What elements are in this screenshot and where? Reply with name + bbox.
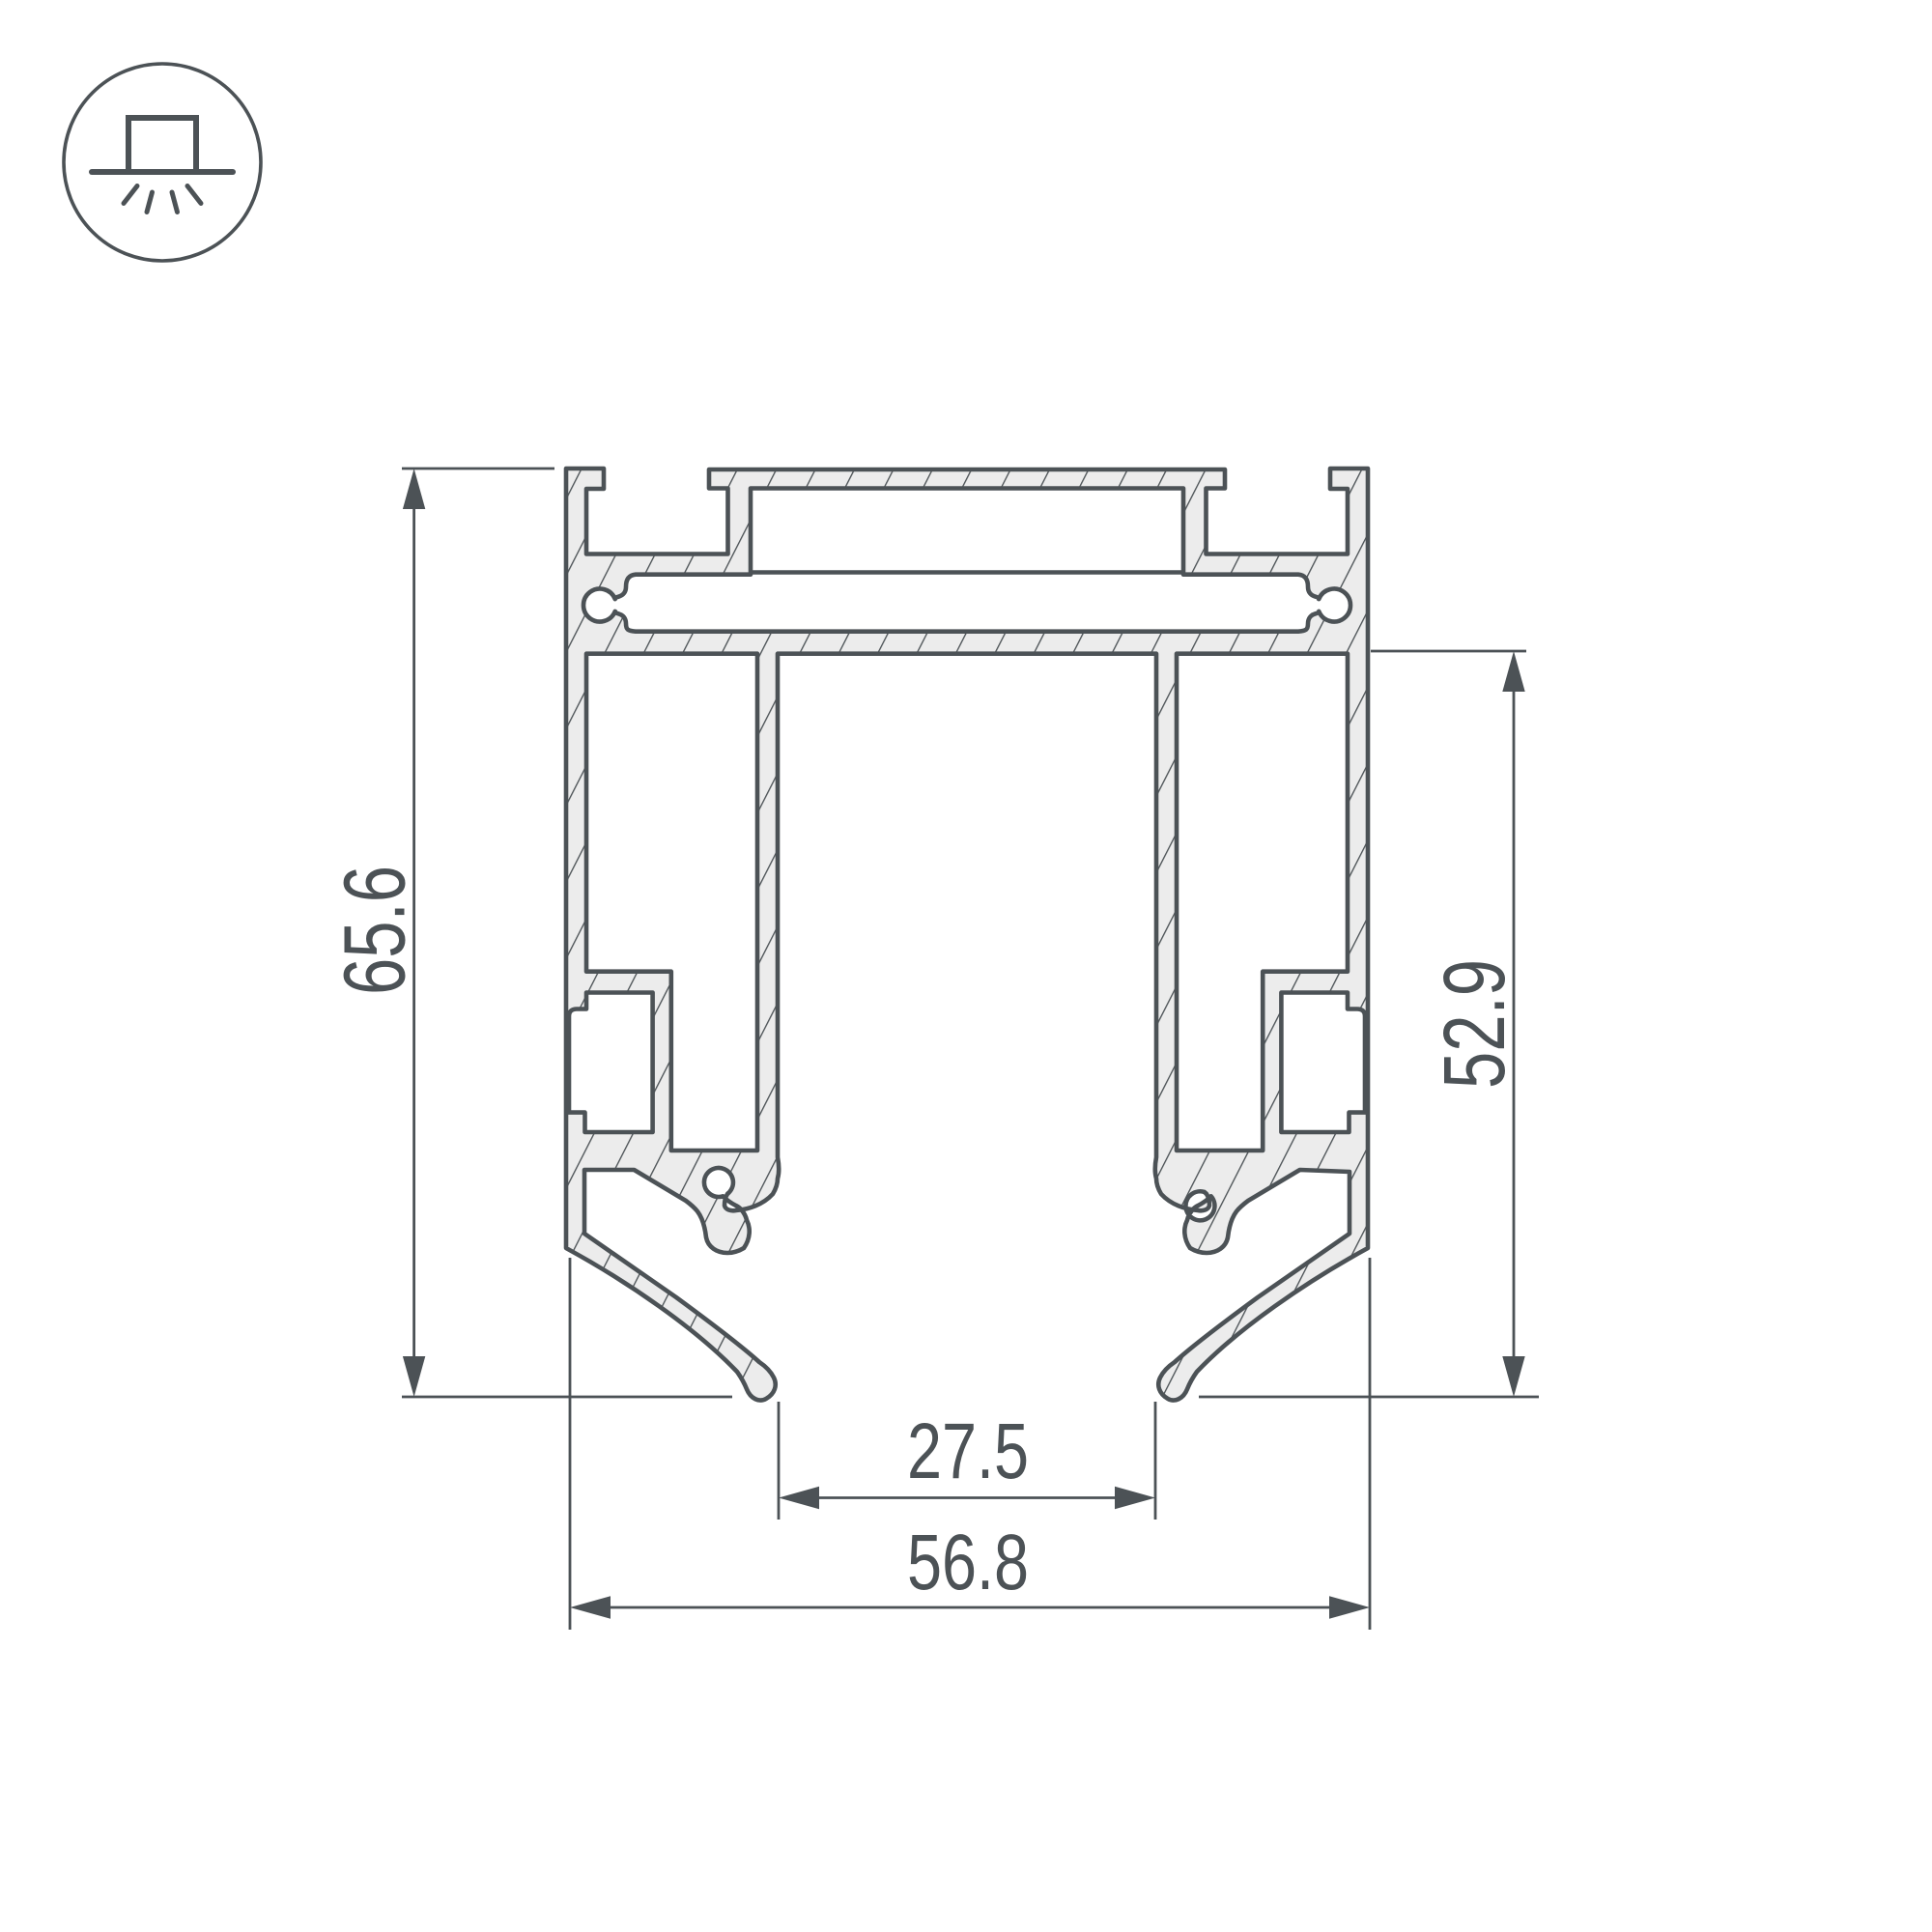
svg-text:52.9: 52.9 — [1427, 959, 1523, 1089]
svg-text:65.6: 65.6 — [327, 866, 423, 995]
svg-text:27.5: 27.5 — [907, 1407, 1029, 1495]
svg-text:56.8: 56.8 — [907, 1519, 1029, 1606]
